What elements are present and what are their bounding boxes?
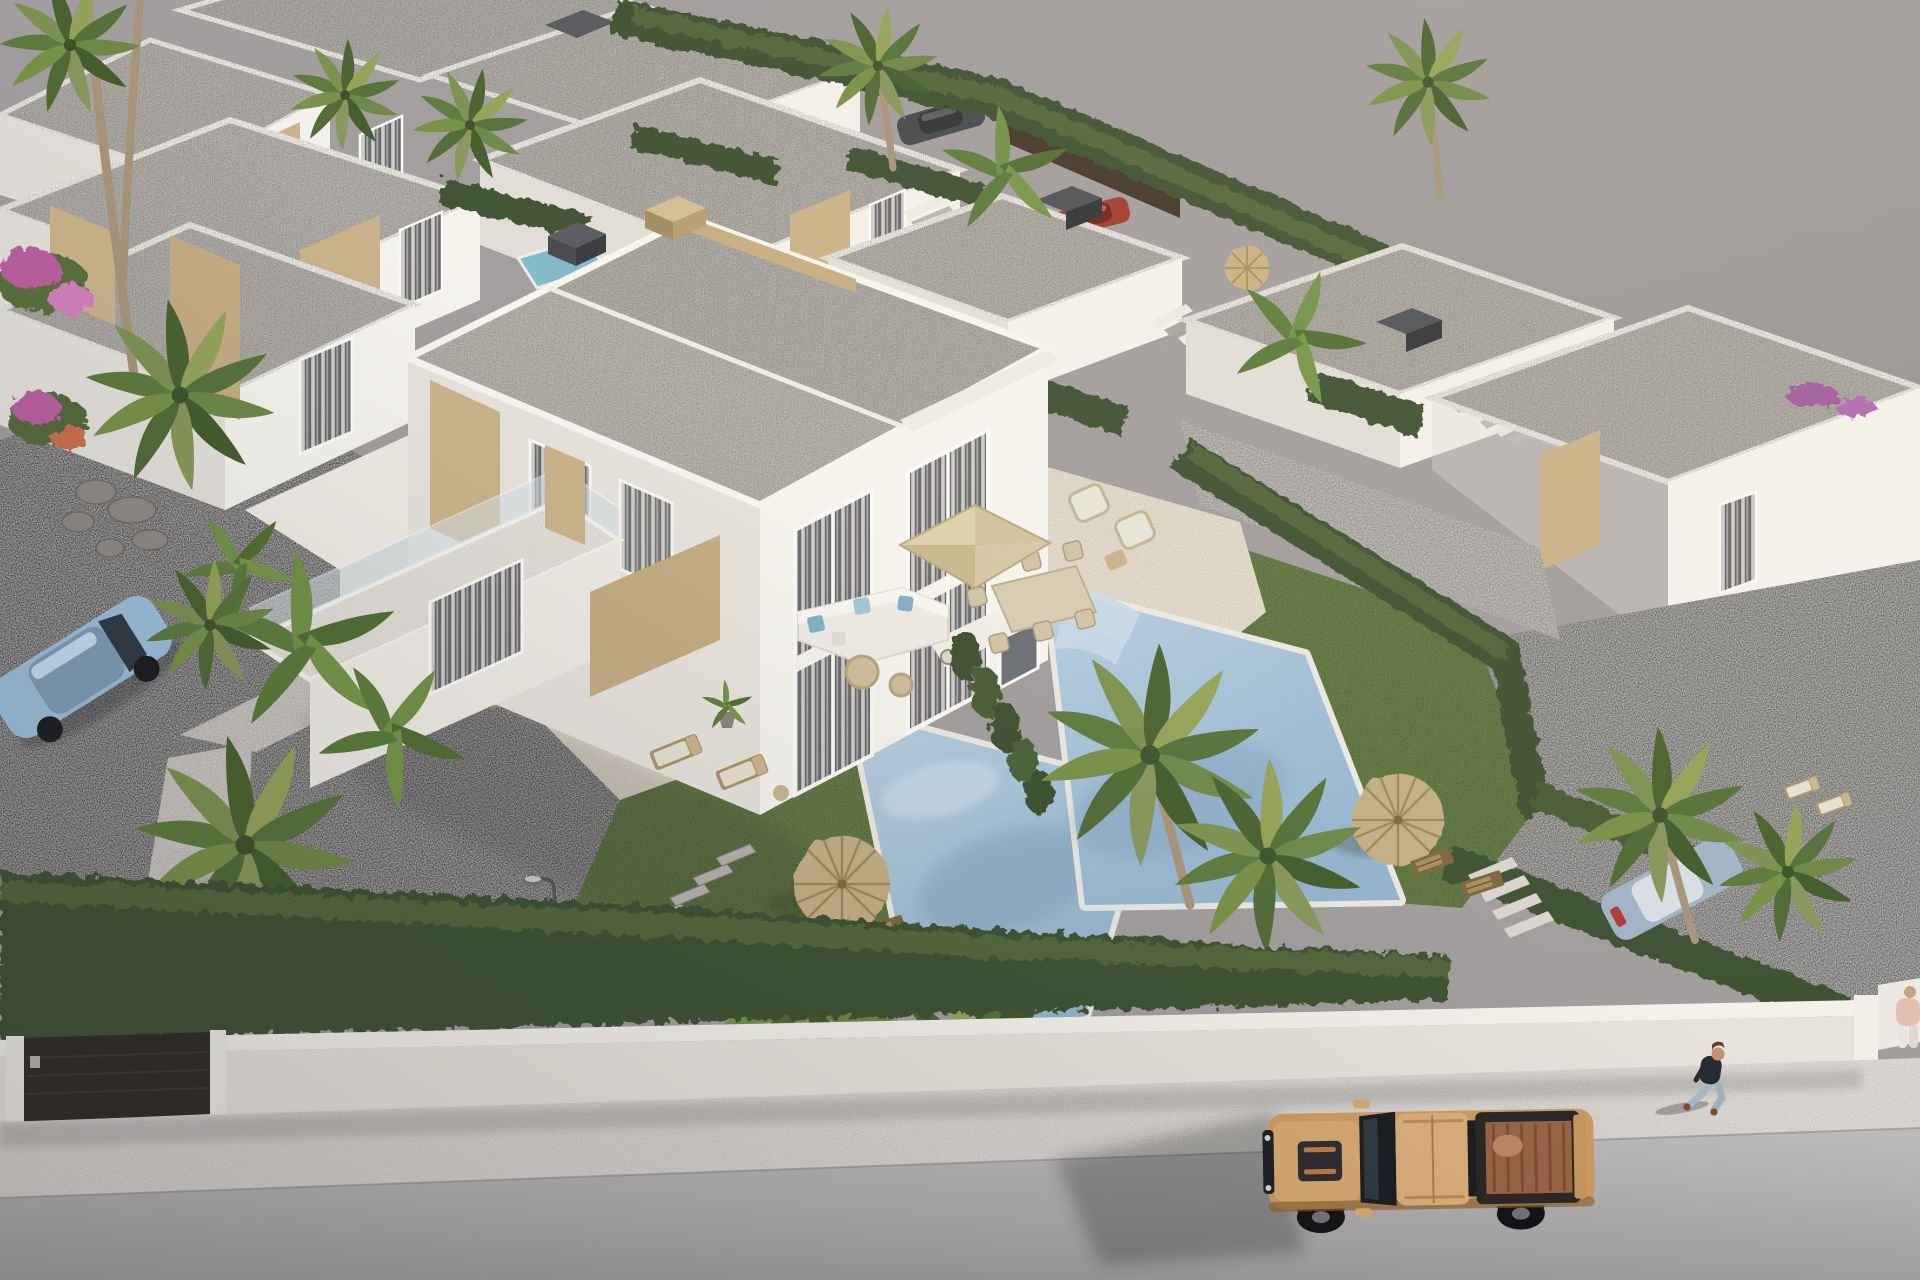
render-canvas [0,0,1920,1280]
shade-overlay [0,0,1920,1280]
scene-svg [0,0,1920,1280]
